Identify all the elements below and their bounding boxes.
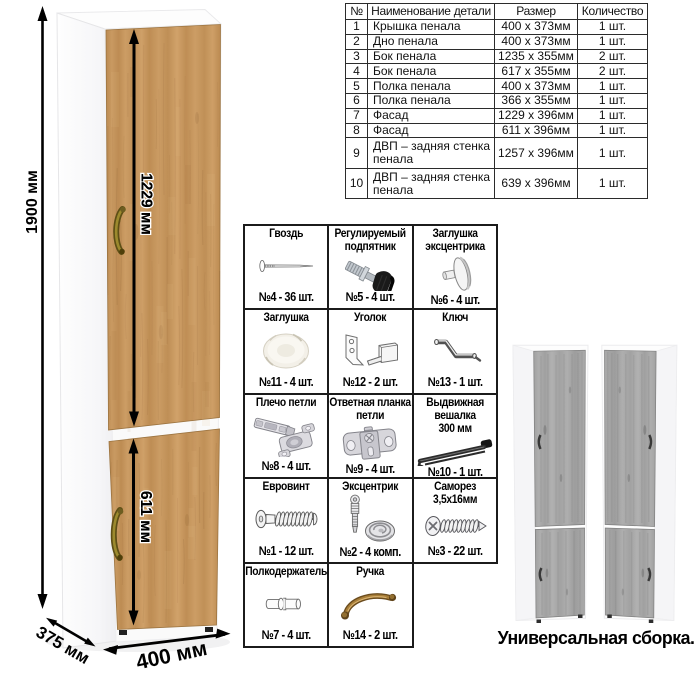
svg-text:1900 мм: 1900 мм	[24, 170, 41, 234]
svg-text:611 мм: 611 мм	[137, 491, 154, 543]
svg-text:1229 мм: 1229 мм	[138, 173, 155, 235]
